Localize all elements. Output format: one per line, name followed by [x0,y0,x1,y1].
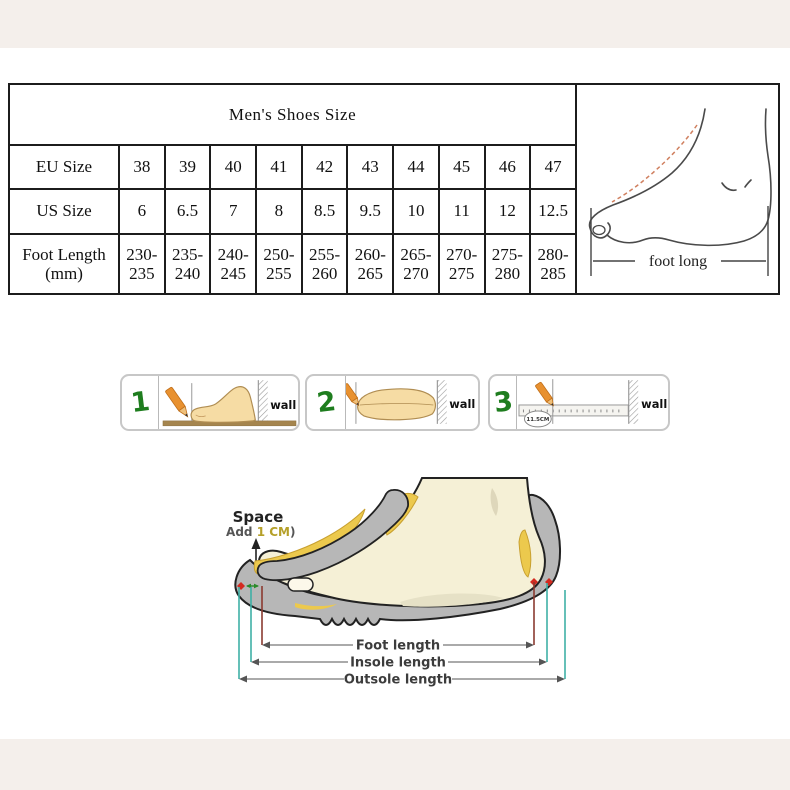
shoe-diagram-svg: Space (Add 1 CM) [225,445,585,695]
bottom-letterbox-band [0,739,790,790]
step-1-number: 1 [129,388,151,417]
foot-long-label: foot long [649,253,707,270]
measure-step-3: 3 11.5CM wall [488,374,670,431]
us-size-cell: 9.5 [347,189,393,234]
foot-length-cell: 240-245 [210,234,256,294]
measure-step-1: 1 wall [120,374,300,431]
row-label-us: US Size [9,189,119,234]
space-arrow-head [252,538,261,549]
ruler-note-label: 11.5CM [526,417,549,423]
wall-label: wall [641,397,667,411]
eu-size-cell: 40 [210,145,256,189]
us-size-cell: 11 [439,189,485,234]
step-2-illustration: wall [346,376,478,429]
foot-outline-top [590,109,705,238]
foot-length-cell: 230-235 [119,234,165,294]
foot-length-label-line2: (mm) [10,264,118,283]
eu-size-cell: 38 [119,145,165,189]
space-note: (Add 1 CM) [225,525,295,539]
foot-length-cell: 250-255 [256,234,302,294]
foot-length-cell: 235-240 [165,234,211,294]
wall-label: wall [270,398,296,412]
eu-size-cell: 41 [256,145,302,189]
us-size-cell: 12 [485,189,531,234]
step-number-cell: 3 [490,376,517,429]
wall-label: wall [449,397,475,411]
foot-length-cell: 270-275 [439,234,485,294]
row-label-eu: EU Size [9,145,119,189]
eu-size-cell: 46 [485,145,531,189]
insole-length-label: Insole length [350,656,446,671]
instep-dashed-line [612,125,697,202]
foot-length-cell: 255-260 [302,234,348,294]
foot-length-cell: 260-265 [347,234,393,294]
toenail [288,578,313,591]
eu-size-cell: 45 [439,145,485,189]
eu-size-cell: 43 [347,145,393,189]
us-size-cell: 7 [210,189,256,234]
foot-length-cell: 275-280 [485,234,531,294]
foot-length-cell: 265-270 [393,234,439,294]
pencil-icon [165,387,191,419]
eu-size-cell: 39 [165,145,211,189]
us-size-cell: 12.5 [530,189,576,234]
us-size-cell: 8.5 [302,189,348,234]
wall-hatch [629,380,638,424]
size-chart-section: Men's Shoes Size EU Size 38 39 40 41 42 … [8,83,780,295]
ankle-mark-2 [745,180,751,187]
step-number-cell: 1 [122,376,159,429]
table-row: EU Size 38 39 40 41 42 43 44 45 46 47 [9,145,576,189]
eu-size-cell: 44 [393,145,439,189]
size-table: Men's Shoes Size EU Size 38 39 40 41 42 … [8,83,577,295]
step-2-number: 2 [315,388,337,417]
shoe-measurement-diagram: Space (Add 1 CM) [225,445,585,695]
toenail [593,226,605,235]
shoe-size-chart-image: Men's Shoes Size EU Size 38 39 40 41 42 … [0,0,790,790]
ankle-mark-1 [722,183,736,190]
table-row: Foot Length (mm) 230-235 235-240 240-245… [9,234,576,294]
wall-hatch [438,380,447,424]
table-row: US Size 6 6.5 7 8 8.5 9.5 10 11 12 12.5 [9,189,576,234]
foot-length-label-line1: Foot Length [10,245,118,264]
us-size-cell: 6.5 [165,189,211,234]
us-size-cell: 10 [393,189,439,234]
space-label: Space [233,508,284,526]
us-size-cell: 8 [256,189,302,234]
eu-size-cell: 42 [302,145,348,189]
step-3-illustration: 11.5CM wall [517,376,668,429]
step-1-illustration: wall [159,376,298,429]
size-table-title: Men's Shoes Size [9,84,576,145]
top-letterbox-band [0,0,790,48]
outsole-length-label: Outsole length [344,673,452,688]
eu-size-cell: 47 [530,145,576,189]
step-number-cell: 2 [307,376,346,429]
foot-length-figure: foot long [577,83,780,295]
us-size-cell: 6 [119,189,165,234]
foot-side-illustration: foot long [577,85,778,293]
foot-length-cell: 280-285 [530,234,576,294]
step-3-number: 3 [492,388,514,417]
row-label-foot-length: Foot Length (mm) [9,234,119,294]
foot-outline-sole [607,109,771,245]
foot-length-label: Foot length [356,639,440,654]
wall-hatch [259,380,268,421]
measure-step-2: 2 wall [305,374,480,431]
